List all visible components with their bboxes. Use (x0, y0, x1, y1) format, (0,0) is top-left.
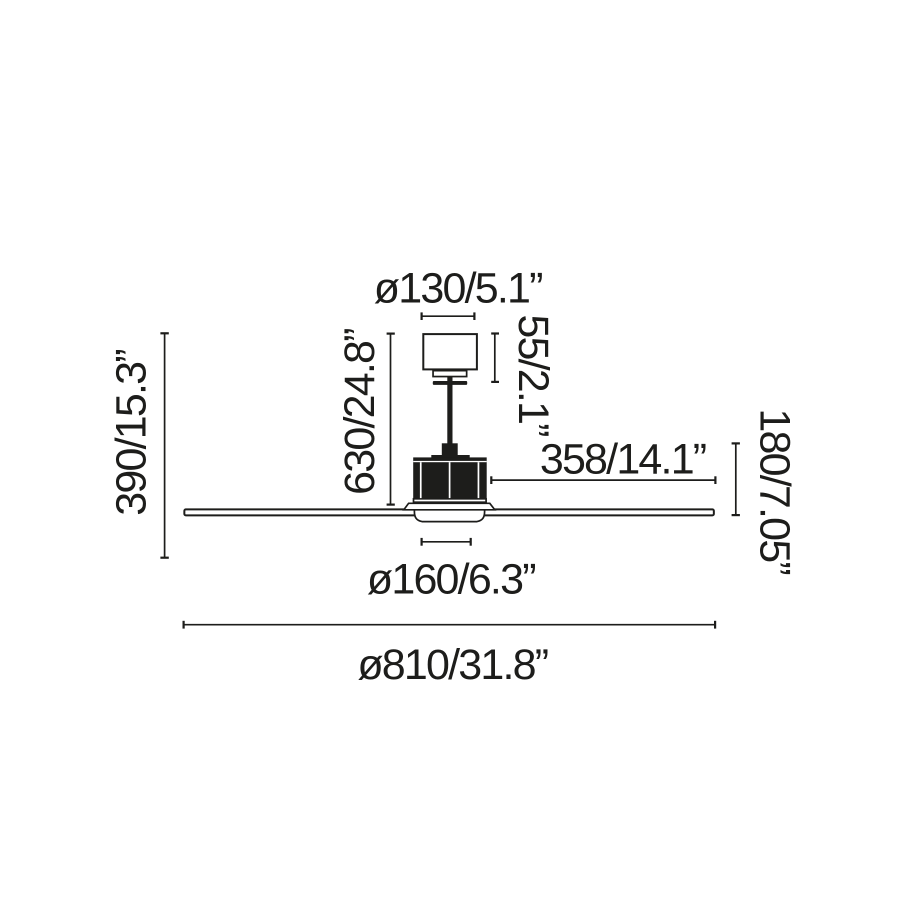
svg-text:630/24.8”: 630/24.8” (336, 329, 384, 495)
svg-text:390/15.3”: 390/15.3” (107, 350, 155, 516)
svg-text:55/2.1”: 55/2.1” (509, 314, 557, 436)
svg-text:180/7.05”: 180/7.05” (750, 408, 798, 574)
svg-text:ø160/6.3”: ø160/6.3” (367, 556, 535, 604)
svg-text:358/14.1”: 358/14.1” (540, 435, 706, 483)
svg-text:ø810/31.8”: ø810/31.8” (357, 641, 547, 689)
svg-text:ø130/5.1”: ø130/5.1” (374, 264, 542, 312)
